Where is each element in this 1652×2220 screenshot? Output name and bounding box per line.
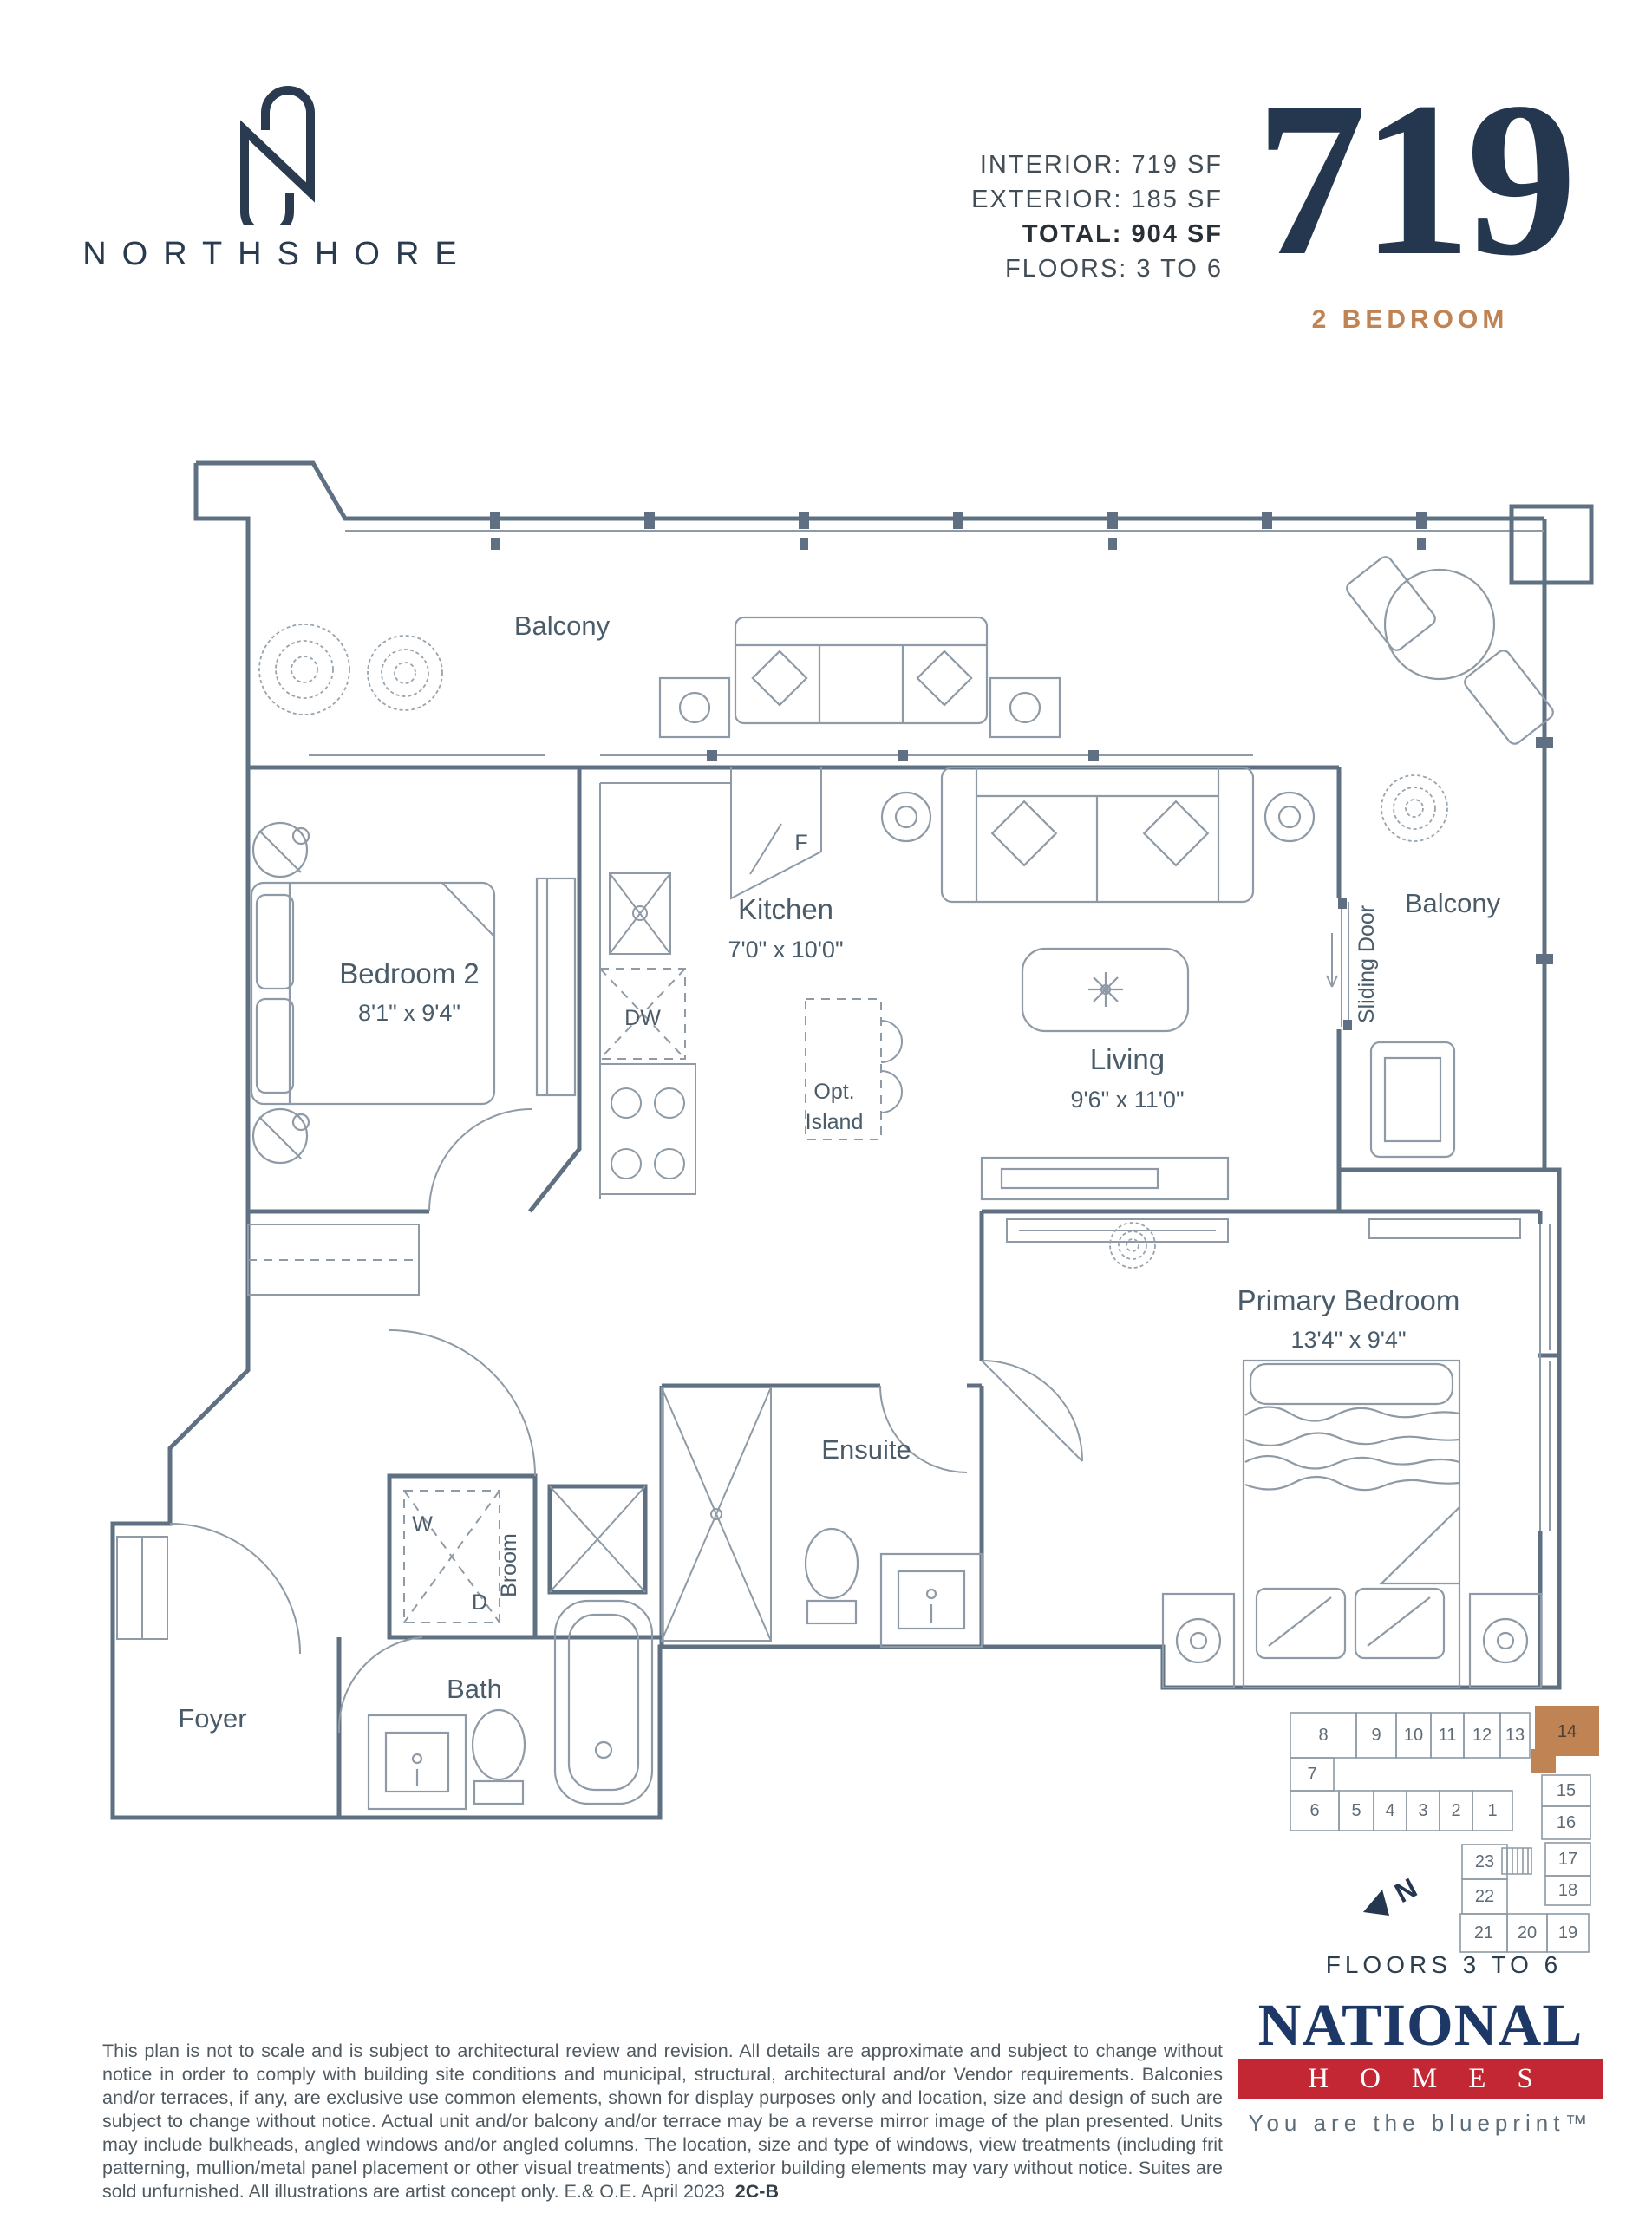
keyplan-unit: 23 — [1475, 1852, 1494, 1871]
living-tv-console — [982, 1158, 1228, 1199]
keyplan-unit: 11 — [1439, 1726, 1457, 1745]
room-dims-kitchen: 7'0" x 10'0" — [728, 937, 843, 963]
keyplan-unit: 20 — [1518, 1923, 1537, 1942]
primary-walls — [982, 1211, 1559, 1688]
room-label-primary: Primary Bedroom — [1237, 1284, 1460, 1316]
keyplan: 8 9 10 11 12 13 14 7 6 5 4 3 2 1 15 16 1… — [1283, 1702, 1606, 1962]
logo-homes-text: HOMES — [1308, 2063, 1564, 2095]
logo-national-text: NATIONAL — [1238, 1993, 1603, 2057]
unit-type: 2 BEDROOM — [1256, 305, 1564, 335]
brand-name: NORTHSHORE — [61, 236, 494, 273]
keyplan-unit: 10 — [1404, 1726, 1423, 1745]
logo-homes-bar: HOMES — [1238, 2059, 1603, 2099]
stat-floors: FLOORS: 3 TO 6 — [850, 251, 1223, 286]
keyplan-unit: 12 — [1472, 1726, 1492, 1745]
label-fridge: F — [794, 831, 807, 855]
keyplan-unit: 9 — [1371, 1726, 1381, 1745]
keyplan-unit: 6 — [1309, 1801, 1319, 1820]
room-label-bedroom2: Bedroom 2 — [339, 957, 479, 989]
label-broom: Broom — [497, 1533, 521, 1597]
keyplan-unit: 18 — [1558, 1881, 1577, 1900]
north-arrow-icon: N — [1363, 1872, 1422, 1916]
room-label-kitchen: Kitchen — [738, 893, 833, 925]
keyplan-unit-highlighted: 14 — [1557, 1722, 1577, 1741]
keyplan-unit: 3 — [1418, 1801, 1427, 1820]
logo-tagline: You are the blueprint™ — [1238, 2110, 1603, 2137]
stat-exterior: EXTERIOR: 185 SF — [850, 182, 1223, 217]
national-homes-logo: NATIONAL HOMES You are the blueprint™ — [1238, 1993, 1603, 2137]
keyplan-unit: 16 — [1557, 1813, 1576, 1832]
floorplan-drawing: Balcony Balcony Sliding Door — [82, 451, 1635, 1830]
room-dims-living: 9'6" x 11'0" — [1070, 1087, 1184, 1113]
bedroom2-walls — [248, 767, 579, 1295]
keyplan-unit: 21 — [1474, 1923, 1493, 1942]
northshore-monogram-icon — [219, 80, 336, 225]
label-sliding-door: Sliding Door — [1355, 905, 1379, 1023]
keyplan-unit: 15 — [1557, 1781, 1576, 1800]
label-island2: Island — [806, 1110, 864, 1134]
keyplan-caption: FLOORS 3 TO 6 — [1275, 1951, 1613, 1979]
room-label-ensuite: Ensuite — [821, 1434, 911, 1465]
unit-number: 719 — [1256, 69, 1564, 291]
label-balcony-top: Balcony — [514, 610, 611, 641]
keyplan-unit: 7 — [1307, 1765, 1316, 1784]
keyplan-unit: 22 — [1475, 1887, 1494, 1906]
balcony-top-plants — [259, 624, 442, 715]
disclaimer-text: This plan is not to scale and is subject… — [102, 2040, 1223, 2204]
keyplan-unit: 5 — [1351, 1801, 1361, 1820]
living-coffee-table — [1022, 949, 1188, 1031]
keyplan-unit: 2 — [1451, 1801, 1460, 1820]
label-dryer: D — [472, 1590, 487, 1615]
label-island1: Opt. — [813, 1080, 854, 1104]
plan-outer-walls — [113, 463, 1591, 1818]
room-dims-primary: 13'4" x 9'4" — [1290, 1327, 1406, 1353]
svg-text:N: N — [1389, 1872, 1421, 1910]
stat-interior: INTERIOR: 719 SF — [850, 147, 1223, 182]
plan-top-wall — [248, 750, 1339, 767]
room-label-foyer: Foyer — [178, 1703, 246, 1734]
label-washer: W — [412, 1512, 433, 1537]
keyplan-unit: 1 — [1487, 1801, 1497, 1820]
room-dims-bedroom2: 8'1" x 9'4" — [358, 1000, 460, 1026]
ensuite-fixtures — [806, 1529, 982, 1647]
stat-total: TOTAL: 904 SF — [850, 217, 1223, 251]
label-balcony-right: Balcony — [1405, 888, 1501, 918]
keyplan-unit: 17 — [1558, 1850, 1577, 1869]
keyplan-unit: 19 — [1558, 1923, 1577, 1942]
bedroom2-bed — [251, 823, 575, 1163]
keyplan-unit: 8 — [1318, 1726, 1328, 1745]
living-sofa — [882, 767, 1314, 902]
balcony-sofa — [660, 617, 1060, 737]
bath-fixtures — [369, 1601, 652, 1809]
floorplan-sheet: NORTHSHORE INTERIOR: 719 SF EXTERIOR: 18… — [0, 0, 1652, 2220]
disclaimer-plan-code: 2C-B — [735, 2181, 779, 2202]
room-label-bath: Bath — [447, 1674, 502, 1704]
ensuite-walls — [662, 1386, 982, 1647]
foyer-details — [117, 1524, 300, 1654]
disclaimer-body: This plan is not to scale and is subject… — [102, 2040, 1223, 2202]
balcony-right-plant — [1381, 775, 1447, 841]
unit-stats: INTERIOR: 719 SF EXTERIOR: 185 SF TOTAL:… — [850, 147, 1223, 286]
room-label-living: Living — [1090, 1043, 1165, 1075]
label-dishwasher: DW — [624, 1006, 661, 1030]
keyplan-unit: 13 — [1505, 1726, 1525, 1745]
primary-bed — [1163, 1361, 1541, 1688]
primary-plant — [1110, 1223, 1155, 1268]
kitchen-counters — [600, 767, 821, 1199]
keyplan-unit: 4 — [1385, 1801, 1394, 1820]
balcony-right-armchair — [1371, 1042, 1454, 1157]
